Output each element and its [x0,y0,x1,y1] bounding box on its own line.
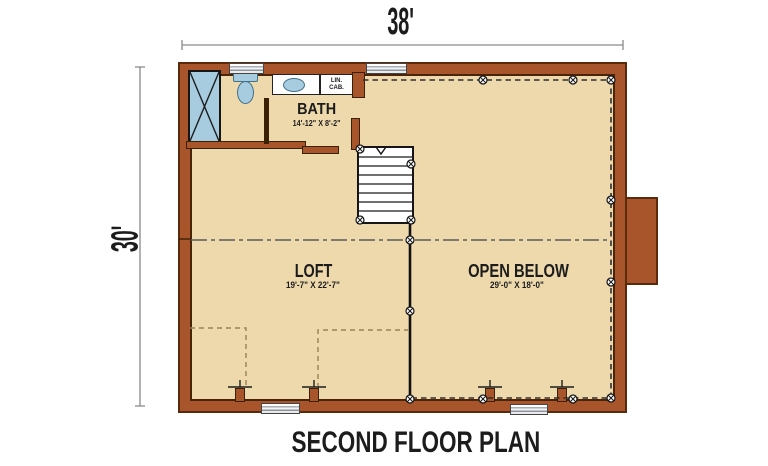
chimney [625,197,658,285]
wall-stub [485,388,495,402]
stairs [357,146,414,224]
bath-wall-lower-a [186,141,306,149]
linen-cabinet-label-line1: LIN. [321,78,352,85]
exterior-walls [178,62,627,413]
room-label-loft: LOFT [263,261,363,282]
window [261,403,300,414]
room-size-bath: 14'-12" X 8'-2" [276,119,358,128]
room-size-open-below: 29'-0" X 18'-0" [457,280,577,290]
floor-plan-canvas: LIN. CAB. [0,0,768,466]
window [366,63,407,74]
bath-wall-lower-b [302,146,339,154]
toilet-partition-wall [264,98,269,144]
sink-icon [283,78,305,92]
window [229,63,264,74]
room-label-bath: BATH [276,101,358,119]
linen-cabinet: LIN. CAB. [320,74,353,95]
bath-wall-right-top [352,72,365,98]
height-dimension-label: 30' [105,199,148,279]
linen-cabinet-label-line2: CAB. [321,85,352,92]
floor-area [190,74,615,401]
width-dimension-label: 38' [351,1,451,44]
wall-stub [235,388,245,402]
wall-stub [557,388,567,402]
window [510,404,548,415]
page-title: SECOND FLOOR PLAN [250,426,562,460]
room-size-loft: 19'-7" X 22'-7" [263,280,363,290]
room-label-open-below: OPEN BELOW [457,261,577,282]
toilet-bowl [237,81,254,104]
shower-stall [188,70,221,143]
wall-stub [309,388,319,402]
sink-vanity [272,74,320,95]
